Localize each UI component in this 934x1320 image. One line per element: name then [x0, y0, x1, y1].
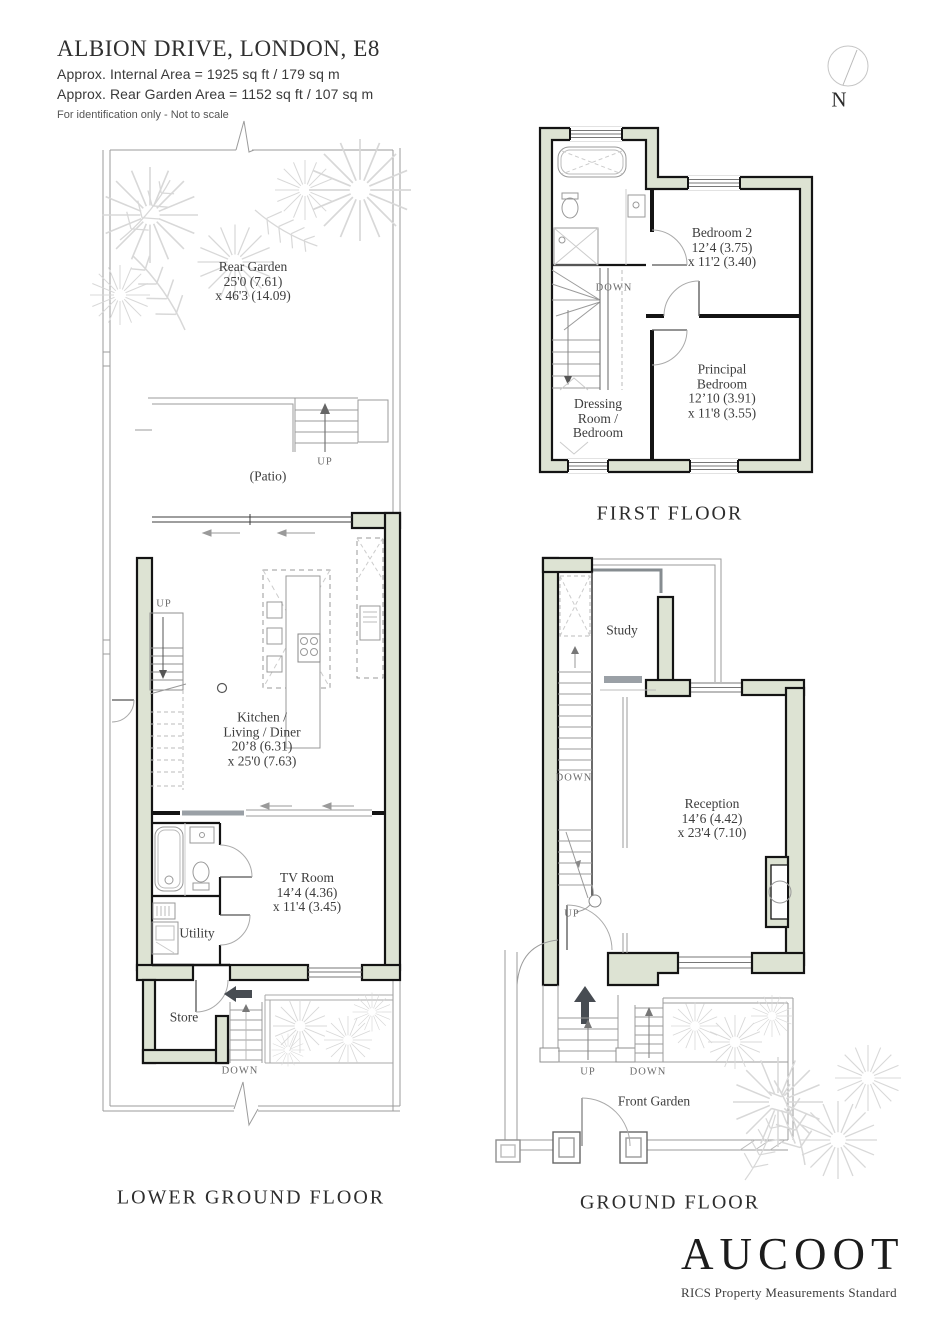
- patio-area: [135, 398, 388, 452]
- lgf-bathtub-icon: [155, 823, 185, 896]
- entry-down-label: DOWN: [630, 1067, 667, 1078]
- room-label-dressing-room: Dressing Room / Bedroom: [573, 397, 623, 441]
- lgf-walls: [137, 513, 400, 1063]
- floorplan-drawing: [0, 0, 934, 1320]
- disclaimer-text: For identification only - Not to scale: [57, 109, 229, 121]
- room-label-kitchen: Kitchen / Living / Diner 20’8 (6.31) x 2…: [223, 711, 300, 770]
- store-entry-arrow-icon: [224, 986, 252, 1002]
- ff-shower-icon: [554, 228, 598, 265]
- gf-walls: [543, 558, 804, 985]
- lgf-glass-doors: [152, 514, 352, 525]
- gf-stairs: [558, 572, 601, 912]
- room-label-store: Store: [170, 1011, 199, 1026]
- north-label: N: [831, 88, 846, 113]
- ff-toilet-icon: [562, 193, 578, 218]
- room-label-utility: Utility: [179, 927, 214, 942]
- room-label-bedroom2: Bedroom 2 12’4 (3.75) x 11'2 (3.40): [688, 226, 756, 270]
- lgf-down-label: DOWN: [222, 1066, 259, 1077]
- garden-area-text: Approx. Rear Garden Area = 1152 sq ft / …: [57, 86, 373, 102]
- ground-floor-title: GROUND FLOOR: [580, 1192, 760, 1215]
- lgf-stairs-up: [150, 613, 186, 790]
- floorplan-page: ALBION DRIVE, LONDON, E8 Approx. Interna…: [0, 0, 934, 1320]
- rear-garden-plants: [90, 139, 411, 339]
- utility-appliances-icon: [152, 903, 178, 954]
- page-title: ALBION DRIVE, LONDON, E8: [57, 36, 380, 62]
- brand-block: AUCOOT RICS Property Measurements Standa…: [681, 1232, 911, 1301]
- lgf-bed-plants: [272, 993, 392, 1067]
- compass-icon: [828, 46, 868, 86]
- brand-logo: AUCOOT: [681, 1232, 911, 1277]
- ground-floor-plan: [496, 558, 901, 1187]
- lgf-up-label: UP: [156, 599, 171, 610]
- room-label-study: Study: [606, 624, 638, 639]
- room-label-tv-room: TV Room 14’4 (4.36) x 11'4 (3.45): [273, 871, 341, 915]
- patio-up-label: UP: [317, 457, 332, 468]
- lower-ground-floor-title: LOWER GROUND FLOOR: [117, 1187, 385, 1210]
- porch-down-arrow-icon: [645, 1007, 653, 1058]
- kitchen-cabinets: [357, 538, 383, 678]
- reception-window-top: [690, 681, 742, 695]
- gate-posts: [496, 1132, 647, 1163]
- room-label-reception: Reception 14’6 (4.42) x 23'4 (7.10): [678, 797, 747, 841]
- ff-down-label: DOWN: [596, 283, 633, 294]
- lgf-toilet-icon: [193, 862, 209, 890]
- lgf-planted-bed: [265, 995, 393, 1063]
- study-glazing: [592, 559, 721, 682]
- ff-sink-icon: [626, 189, 645, 265]
- front-garden-plants: [671, 995, 901, 1187]
- room-label-front-garden: Front Garden: [618, 1095, 690, 1110]
- lgf-sink-icon: [190, 827, 214, 843]
- room-label-patio: (Patio): [250, 470, 287, 485]
- brand-standard: RICS Property Measurements Standard: [681, 1285, 911, 1301]
- reception-window-bottom: [678, 955, 752, 971]
- pocket-door-wall: [152, 810, 385, 816]
- column-marker: [218, 684, 227, 693]
- gf-up-label: UP: [564, 909, 579, 920]
- lgf-partitions: [152, 823, 230, 965]
- lgf-bottom-window: [308, 968, 362, 977]
- first-floor-title: FIRST FLOOR: [597, 503, 744, 526]
- ff-bathtub-icon: [558, 147, 626, 177]
- lgf-stairs-down: [230, 1002, 262, 1063]
- gf-down-label: DOWN: [556, 773, 593, 784]
- gf-wall-stubs: [623, 697, 627, 953]
- room-label-rear-garden: Rear Garden 25'0 (7.61) x 46'3 (14.09): [215, 260, 291, 304]
- entry-up-label: UP: [580, 1067, 595, 1078]
- room-label-principal-bedroom: Principal Bedroom 12’10 (3.91) x 11'8 (3…: [688, 363, 756, 422]
- internal-area-text: Approx. Internal Area = 1925 sq ft / 179…: [57, 66, 340, 82]
